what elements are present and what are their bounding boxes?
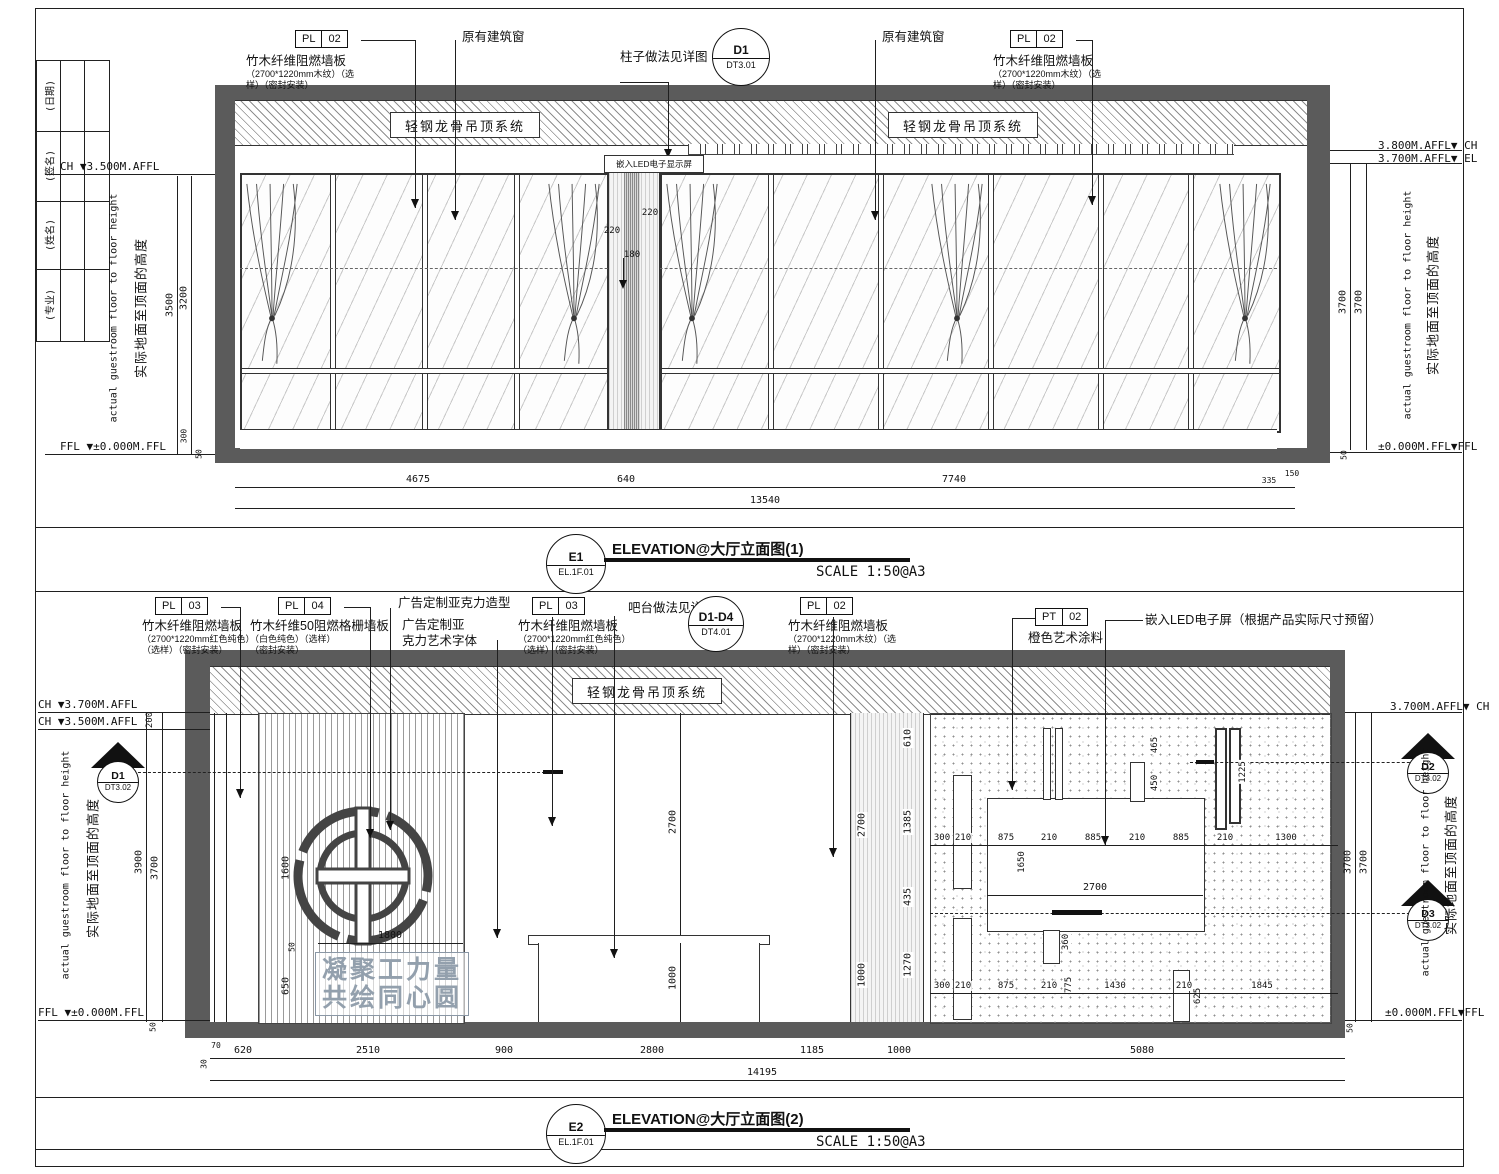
slogan-box: 凝聚工力量 共绘同心圆: [315, 952, 469, 1016]
dim-label: 210: [1216, 833, 1234, 843]
centerline: [1190, 762, 1430, 763]
dim-label: 610: [903, 728, 914, 748]
dim-line: [930, 845, 1338, 846]
view-ref: EL.1F.01: [547, 1136, 605, 1164]
divider-line: [35, 527, 1464, 528]
callout-line: （2700*1220mm红色纯色）: [142, 634, 255, 645]
detail-code: D1: [713, 29, 769, 59]
level-label: FFL ▼±0.000M.FFL: [38, 1006, 144, 1019]
leader-arrow: [610, 949, 618, 958]
dim-line: [146, 713, 147, 1022]
callout-led-note: 嵌入LED电子屏（根据产品实际尺寸预留）: [1145, 613, 1382, 629]
wall-niche: [953, 775, 972, 889]
detail-ref: DT4.01: [689, 626, 743, 652]
dim-label: 3900: [134, 850, 145, 874]
centerline-dash: [1052, 910, 1102, 915]
tag-number: 02: [1037, 31, 1061, 47]
view-code: E1: [547, 535, 605, 566]
height-note-cn: 实际地面至顶面的高度: [1441, 795, 1460, 935]
dim-label: 900: [495, 1045, 513, 1056]
e1-wall-top: [215, 85, 1330, 100]
wall-niche: [1173, 970, 1190, 1022]
tag-number: 02: [827, 598, 851, 614]
callout-text-pl02-left: 竹木纤维阻燃墙板 （2700*1220mm木纹）（选 样）（密封安装）: [246, 54, 354, 91]
dim-line: [930, 993, 1338, 994]
e1-led-screen-box: 嵌入LED电子显示屏: [604, 155, 704, 173]
centerline: [118, 772, 560, 773]
dim-label: 210: [1128, 833, 1146, 843]
dim-label: 3500: [165, 293, 176, 317]
dim-label: 70: [211, 1041, 221, 1050]
callout-text-pl02: 竹木纤维阻燃墙板 （2700*1220mm木纹）（选 样）（密封安装）: [788, 619, 896, 656]
e2-wall-right: [1330, 650, 1345, 1038]
level-label-ffl: FFL ▼±0.000M.FFL: [60, 440, 166, 453]
dim-label: 2510: [356, 1045, 380, 1056]
dim-line: [162, 713, 163, 1022]
marker-circle: D1 DT3.02: [97, 761, 139, 803]
titleblock-row-label: (签名): [42, 150, 57, 182]
leader-arrow: [411, 199, 419, 208]
dim-line: [210, 1080, 1345, 1081]
e1-wall-left: [215, 85, 235, 463]
dim-label: 3700: [1338, 290, 1349, 314]
dim-line: [235, 487, 1295, 488]
wall-slot: [1215, 728, 1227, 830]
dim-label: 14195: [747, 1067, 777, 1078]
callout-tag-pl03-right: PL 03: [532, 597, 585, 615]
dim-label: 1385: [903, 809, 914, 835]
callout-line: 样）（密封安装）: [246, 80, 354, 91]
dim-label: 1000: [668, 966, 679, 990]
dim-label: 150: [1285, 469, 1299, 478]
marker-ref: DT3.02: [98, 783, 138, 803]
dim-label: 1650: [1017, 851, 1027, 873]
dim-line: [1355, 713, 1356, 1022]
curtain-drawing: [243, 176, 301, 391]
dim-line: [318, 943, 463, 944]
callout-line: （密封安装）: [250, 645, 389, 656]
dim-label: 220: [642, 208, 658, 218]
dim-label: 210: [1175, 981, 1193, 991]
frame-top-line: [35, 8, 1464, 9]
callout-line: 竹木纤维阻燃墙板: [142, 619, 255, 634]
height-note-cn: 实际地面至顶面的高度: [83, 798, 102, 938]
tag-code: PL: [801, 598, 827, 614]
window-mullion: [514, 175, 520, 431]
leader-line: [1092, 40, 1093, 205]
leader-line: [668, 82, 669, 158]
e1-scale-label: SCALE 1:50@A3: [816, 564, 926, 580]
callout-line: 样）（密封安装）: [993, 80, 1101, 91]
dim-label: 4675: [406, 474, 430, 485]
leader-arrow: [236, 789, 244, 798]
curtain-drawing: [663, 176, 721, 391]
wall-niche: [953, 918, 972, 1020]
e2-title-bubble: E2 EL.1F.01: [546, 1104, 606, 1164]
dim-label: 1845: [1250, 981, 1274, 991]
e2-floor-band: [185, 1022, 1345, 1038]
e2-view-title: ELEVATION@大厅立面图(2): [612, 1108, 804, 1129]
dim-label: 2700: [668, 810, 679, 834]
callout-tag-pl03-left: PL 03: [155, 597, 208, 615]
callout-line: （白色纯色）（选样）: [250, 634, 389, 645]
dim-line: [210, 1058, 1345, 1059]
leader-line: [1012, 618, 1035, 619]
callout-tag-pl02: PL 02: [800, 597, 853, 615]
leader-line: [240, 607, 241, 798]
callout-line: （选样）（密封安装）: [142, 645, 255, 656]
dim-label: 2700: [857, 812, 868, 838]
dim-label: 640: [617, 474, 635, 485]
leader-line: [1105, 620, 1106, 845]
detail-ref: DT3.01: [713, 59, 769, 86]
dim-label: 1300: [1274, 833, 1298, 843]
titleblock-grid-line: [37, 131, 109, 132]
callout-line: 竹木纤维阻燃墙板: [993, 54, 1101, 69]
leader-line: [390, 608, 391, 830]
dim-label: 360: [1061, 933, 1071, 951]
tag-code: PL: [1011, 31, 1037, 47]
e2-ceiling-hatch: [210, 666, 1330, 715]
wall-slot: [1055, 728, 1063, 800]
e1-title-bubble: E1 EL.1F.01: [546, 534, 606, 594]
leader-arrow: [829, 848, 837, 857]
e1-view-title: ELEVATION@大厅立面图(1): [612, 538, 804, 559]
height-note-cn: 实际地面至顶面的高度: [1423, 235, 1442, 375]
union-logo: [290, 803, 436, 949]
callout-line: 竹木纤维阻燃墙板: [788, 619, 896, 634]
callout-acrylic-shape: 广告定制亚克力造型: [398, 596, 511, 612]
dim-label: 2800: [640, 1045, 664, 1056]
window-mullion: [1098, 175, 1104, 431]
callout-line: （2700*1220mm木纹）（选: [246, 69, 354, 80]
leader-line: [415, 40, 416, 208]
window-mullion: [422, 175, 428, 431]
callout-line: 竹木纤维阻燃墙板: [246, 54, 354, 69]
dim-label: 5080: [1130, 1045, 1154, 1056]
dim-label: 3200: [179, 286, 190, 310]
dim-line: [235, 508, 1295, 509]
dim-label: 50: [288, 942, 297, 952]
tag-number: 03: [559, 598, 583, 614]
dim-label: 300: [933, 833, 951, 843]
dim-label: 50: [1346, 1023, 1355, 1033]
dim-line: [987, 895, 1203, 896]
dim-label: 3700: [1359, 850, 1370, 874]
view-code: E2: [547, 1105, 605, 1136]
dim-label: 210: [1040, 981, 1058, 991]
titleblock-grid-line: [37, 269, 109, 270]
level-label: CH ▼3.500M.AFFL: [38, 715, 137, 728]
callout-text-pt02: 橙色艺术涂料: [1028, 631, 1103, 646]
e2-door-frame-line: [226, 713, 227, 1022]
dim-label: 450: [1150, 774, 1160, 792]
leader-line: [221, 607, 240, 608]
dim-line: [1350, 163, 1351, 450]
level-line: [38, 712, 210, 713]
dim-label: 180: [624, 250, 640, 260]
leader-line: [620, 82, 668, 83]
dim-line: [680, 713, 681, 935]
dim-label: 775: [1064, 976, 1074, 994]
dim-label: 620: [234, 1045, 252, 1056]
level-line: [38, 729, 210, 730]
e1-floor-band: [235, 448, 1307, 463]
divider-line: [35, 591, 1464, 592]
height-note-en: actual guestroom floor to floor height: [1421, 748, 1432, 977]
dim-label: 435: [903, 887, 914, 907]
frame-right-line: [1463, 8, 1464, 1166]
dim-label: 875: [997, 981, 1015, 991]
leader-line: [1076, 40, 1092, 41]
e1-ceiling-label-box: 轻钢龙骨吊顶系统: [888, 112, 1038, 138]
e1-wall-right: [1307, 85, 1330, 463]
callout-window-right: 原有建筑窗: [882, 30, 945, 46]
window-mullion: [330, 175, 336, 431]
level-line: [45, 174, 215, 175]
leader-arrow: [548, 817, 556, 826]
callout-tag-pl02-right: PL 02: [1010, 30, 1063, 48]
dim-label: 50: [149, 1022, 158, 1032]
leader-line: [614, 616, 615, 958]
dim-label: 3700: [1343, 850, 1354, 874]
callout-line: 广告定制亚: [402, 618, 477, 634]
leader-line: [623, 258, 624, 282]
curtain-drawing: [545, 176, 603, 391]
wall-slot: [1043, 728, 1051, 800]
leader-arrow: [1008, 781, 1016, 790]
tag-code: PL: [296, 31, 322, 47]
callout-line: 克力艺术字体: [402, 634, 477, 650]
dim-label: 1225: [1238, 760, 1248, 784]
e1-center-dashed-line: [240, 268, 1277, 269]
leader-arrow: [1101, 836, 1109, 845]
divider-line: [35, 1097, 1464, 1098]
callout-line: 竹木纤维50阻燃格栅墙板: [250, 619, 389, 634]
leader-line: [875, 40, 876, 220]
dim-label: 1000: [887, 1045, 911, 1056]
leader-line: [1012, 618, 1013, 790]
dim-line: [680, 943, 681, 1022]
leader-line: [497, 640, 498, 938]
tag-code: PT: [1036, 609, 1063, 625]
divider-line: [35, 1149, 1464, 1150]
level-line: [1345, 1020, 1462, 1021]
window-mullion: [768, 175, 774, 431]
level-line: [1330, 150, 1462, 151]
centerline-dash: [543, 770, 563, 774]
e2-scale-label: SCALE 1:50@A3: [816, 1134, 926, 1150]
level-label: ±0.000M.FFL▼FFL: [1385, 1006, 1484, 1019]
leader-arrow: [619, 280, 627, 289]
leader-line: [552, 617, 553, 826]
callout-window-left: 原有建筑窗: [462, 30, 525, 46]
window-mullion: [1188, 175, 1194, 431]
level-line: [38, 1020, 210, 1021]
dim-label: 650: [281, 977, 292, 995]
callout-line: （2700*1220mm木纹）（选: [993, 69, 1101, 80]
wall-niche: [1043, 930, 1060, 964]
callout-tag-pl02-left: PL 02: [295, 30, 348, 48]
dim-label: 210: [954, 833, 972, 843]
tag-number: 04: [305, 598, 329, 614]
leader-line: [1105, 620, 1143, 621]
leader-line: [833, 617, 834, 857]
frame-bottom-line: [35, 1166, 1464, 1167]
dim-label: 1000: [857, 962, 868, 988]
dim-label: 3700: [1354, 290, 1365, 314]
level-label: CH ▼3.700M.AFFL: [38, 698, 137, 711]
tag-number: 02: [1063, 609, 1087, 625]
e2-door-frame-line: [214, 713, 215, 1022]
titleblock-strip: (日期) (签名) (姓名) (专业): [36, 60, 110, 342]
e1-ceiling-grid-strip: [688, 144, 1234, 155]
dim-label: 300: [180, 429, 189, 443]
dim-line: [177, 176, 178, 454]
leader-arrow: [386, 821, 394, 830]
dim-line: [191, 176, 192, 454]
dim-label: 875: [997, 833, 1015, 843]
e2-wall-left: [185, 650, 210, 1038]
callout-text-pl03-left: 竹木纤维阻燃墙板 （2700*1220mm红色纯色） （选样）（密封安装）: [142, 619, 255, 656]
dim-label: 210: [954, 981, 972, 991]
dim-label: 50: [195, 449, 204, 459]
title-underline: [604, 1128, 910, 1132]
dim-line: [1371, 713, 1372, 1022]
e1-ceiling-label-box: 轻钢龙骨吊顶系统: [390, 112, 540, 138]
dim-label: 3700: [150, 856, 161, 880]
leader-line: [455, 40, 456, 220]
callout-line: 橙色艺术涂料: [1028, 631, 1103, 646]
dim-label: 465: [1150, 736, 1160, 754]
dim-label: 885: [1172, 833, 1190, 843]
dim-label: 885: [1084, 833, 1102, 843]
callout-text-pl02-right: 竹木纤维阻燃墙板 （2700*1220mm木纹）（选 样）（密封安装）: [993, 54, 1101, 91]
dim-label: 30: [200, 1059, 209, 1069]
dim-label: 1600: [281, 856, 292, 880]
tag-number: 03: [182, 598, 206, 614]
callout-text-pl04: 竹木纤维50阻燃格栅墙板 （白色纯色）（选样） （密封安装）: [250, 619, 389, 656]
curtain-drawing: [928, 176, 986, 391]
view-ref: EL.1F.01: [547, 566, 605, 594]
centerline-dash: [1196, 760, 1214, 764]
level-line: [1330, 452, 1462, 453]
height-note-cn: 实际地面至顶面的高度: [131, 238, 150, 378]
window-mullion: [988, 175, 994, 431]
titleblock-grid-line: [37, 201, 109, 202]
slogan-line: 凝聚工力量: [322, 956, 462, 984]
height-note-en: actual guestroom floor to floor height: [61, 751, 72, 980]
leader-arrow: [366, 829, 374, 838]
leader-arrow: [871, 211, 879, 220]
callout-tag-pt02: PT 02: [1035, 608, 1088, 626]
dim-label: 210: [1040, 833, 1058, 843]
section-marker-d1: D1 DT3.02: [91, 742, 145, 803]
leader-arrow: [451, 211, 459, 220]
e2-ceiling-label-box: 轻钢龙骨吊顶系统: [572, 678, 722, 704]
tag-code: PL: [156, 598, 182, 614]
tag-number: 02: [322, 31, 346, 47]
drawing-sheet: (日期) (签名) (姓名) (专业) 轻钢龙骨吊顶系统 轻钢龙骨吊顶系统: [0, 0, 1499, 1174]
dim-label: 13540: [750, 495, 780, 506]
slogan-line: 共绘同心圆: [322, 984, 462, 1012]
dim-label: 1185: [800, 1045, 824, 1056]
detail-bubble-d1-d4: D1-D4 DT4.01: [688, 596, 744, 652]
level-line: [1345, 712, 1462, 713]
dim-label: 7740: [942, 474, 966, 485]
callout-line: 样）（密封安装）: [788, 645, 896, 656]
leader-arrow: [493, 929, 501, 938]
title-underline: [604, 558, 910, 562]
titleblock-row-label: (日期): [42, 80, 57, 112]
callout-column-note: 柱子做法见详图: [620, 50, 708, 66]
bar-counter-body: [538, 943, 760, 1022]
dim-line: [1366, 163, 1367, 450]
dim-label: 220: [604, 226, 620, 236]
dim-label: 335: [1262, 476, 1276, 485]
tag-code: PL: [533, 598, 559, 614]
e1-column-core: [624, 155, 640, 447]
leader-arrow: [1088, 196, 1096, 205]
callout-tag-pl04: PL 04: [278, 597, 331, 615]
leader-line: [361, 40, 415, 41]
level-line: [45, 454, 215, 455]
curtain-drawing: [1216, 176, 1274, 391]
dim-label: 1800: [378, 930, 402, 941]
dim-label: 625: [1193, 987, 1203, 1005]
callout-line: （2700*1220mm木纹）（选: [788, 634, 896, 645]
height-note-en: actual guestroom floor to floor height: [109, 194, 120, 423]
tag-code: PL: [279, 598, 305, 614]
dim-label: 1270: [903, 952, 914, 978]
e1-sill-band: [240, 429, 1277, 449]
height-note-en: actual guestroom floor to floor height: [1403, 191, 1414, 420]
level-label-ch: CH ▼3.500M.AFFL: [60, 160, 159, 173]
titleblock-row-label: (专业): [42, 289, 57, 321]
dim-label: 1430: [1103, 981, 1127, 991]
leader-line: [370, 607, 371, 838]
titleblock-row-label: (姓名): [42, 219, 57, 251]
leader-line: [344, 607, 370, 608]
detail-bubble-d1: D1 DT3.01: [712, 28, 770, 86]
wall-niche: [1130, 762, 1145, 802]
dim-label: 300: [933, 981, 951, 991]
callout-acrylic-text: 广告定制亚 克力艺术字体: [402, 618, 477, 649]
dim-label: 2700: [1083, 882, 1107, 893]
